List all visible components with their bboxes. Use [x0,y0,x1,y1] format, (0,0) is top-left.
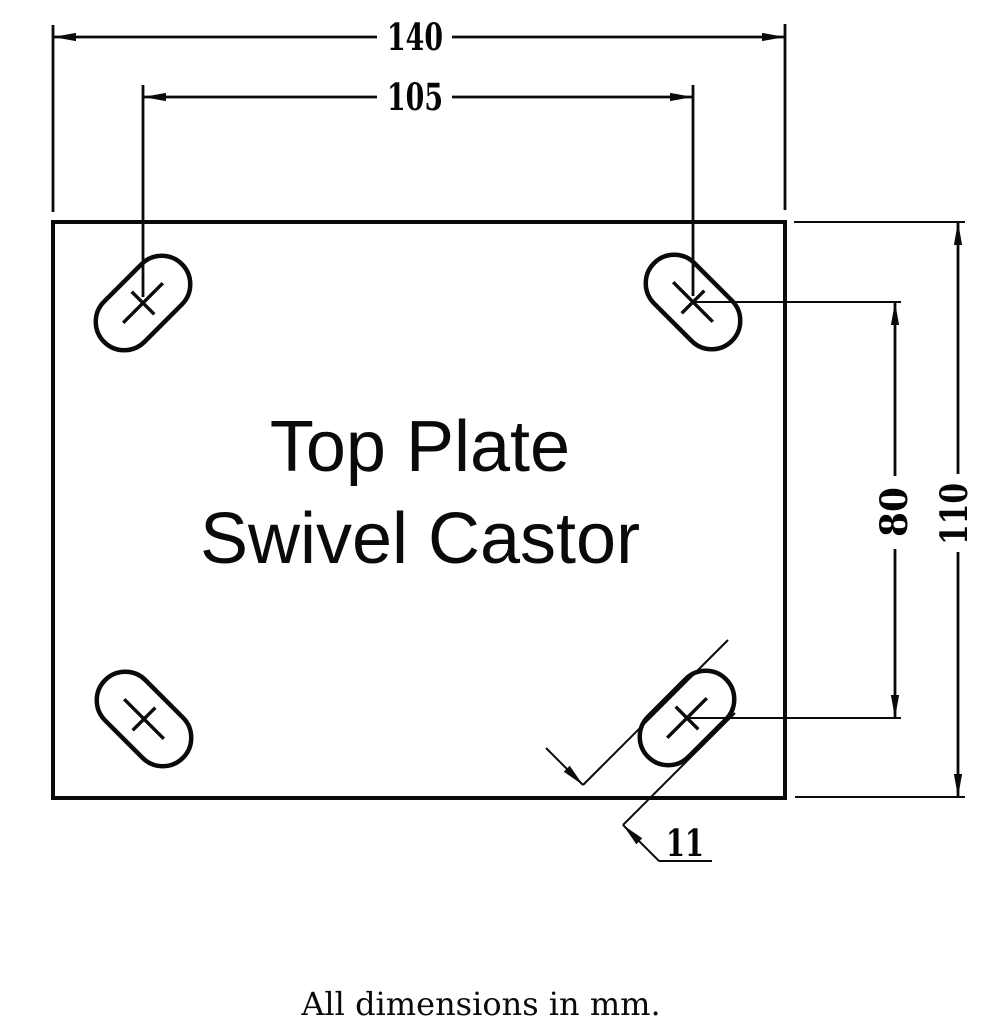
dimension-hole-spacing-width: 105 [143,75,693,297]
dimension-value-110: 110 [932,483,976,545]
drawing-canvas: 140 105 110 80 [0,0,1002,1024]
dimension-value-11: 11 [666,821,704,865]
title-line-2: Swivel Castor [200,499,640,579]
arrowhead-top [891,302,899,325]
arrowhead-bottom [891,695,899,718]
dimension-value-105: 105 [387,75,443,119]
dimension-slot-width: 11 [546,640,735,865]
arrowhead-right [762,33,785,41]
leader-line [623,825,659,861]
title-line-1: Top Plate [270,407,570,487]
dimension-hole-spacing-height: 80 [689,302,916,718]
arrowhead-upper-shape [564,766,586,788]
dimension-value-140: 140 [387,15,443,59]
arrowhead-upper [564,766,586,788]
drawing-sheet: 140 105 110 80 [0,0,1002,1024]
arrowhead-right [670,93,693,101]
dimension-value-80: 80 [872,487,916,537]
drawing-title: Top Plate Swivel Castor [200,407,640,579]
arrowhead-bottom [954,774,962,797]
arrowhead-left [143,93,166,101]
arrowhead-left [53,33,76,41]
mounting-slot-bottom-left [85,660,203,778]
footnote-units-note: All dimensions in mm. [300,985,660,1023]
arrowhead-top [954,222,962,245]
